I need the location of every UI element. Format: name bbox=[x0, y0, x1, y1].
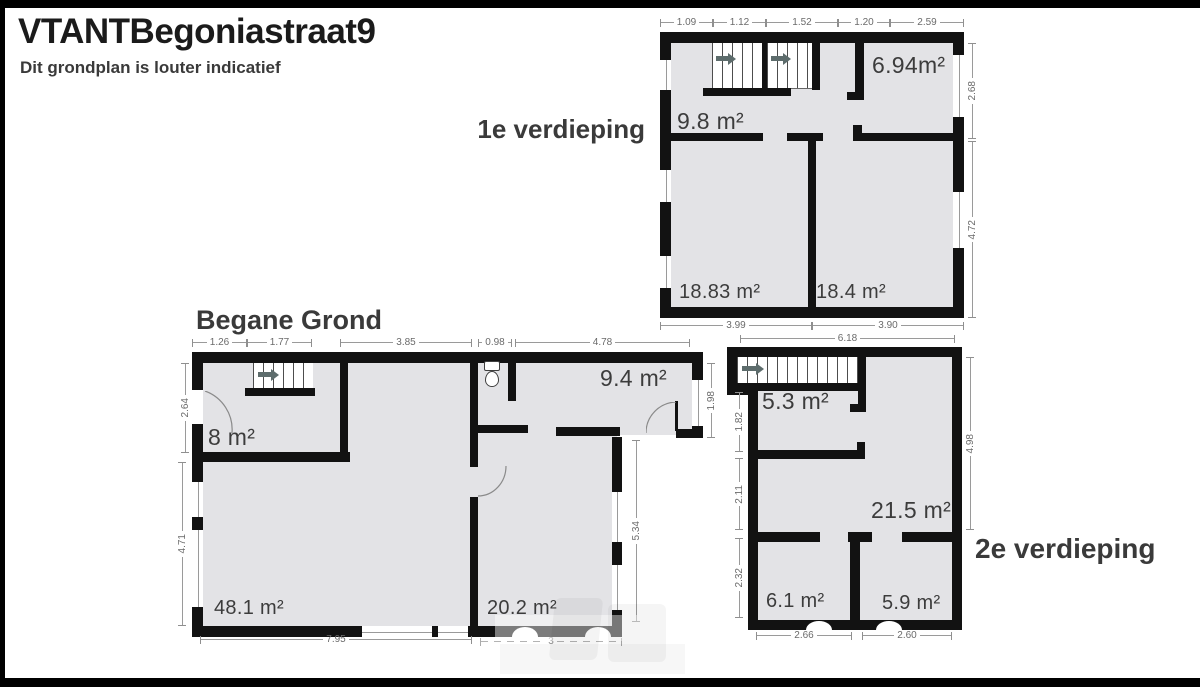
wall bbox=[470, 363, 478, 467]
window bbox=[192, 482, 203, 517]
dimension: 2.66 bbox=[756, 630, 852, 641]
dimension: 4.98 bbox=[964, 357, 976, 530]
dimension: 3.99 bbox=[660, 320, 812, 331]
floor-label-ground: Begane Grond bbox=[196, 305, 382, 336]
left-frame-bar bbox=[0, 0, 5, 687]
stairs-arrow-icon bbox=[771, 56, 783, 61]
dimension: 6.18 bbox=[740, 333, 955, 344]
dimension: 1.12 bbox=[713, 17, 766, 28]
wall bbox=[340, 363, 348, 453]
dimension: 2.59 bbox=[890, 17, 964, 28]
stairs bbox=[712, 43, 762, 89]
dimension: 3.85 bbox=[340, 337, 472, 348]
wall bbox=[748, 395, 758, 620]
wall bbox=[660, 307, 964, 318]
dimension: 1.09 bbox=[660, 17, 713, 28]
wall bbox=[808, 137, 816, 307]
window bbox=[660, 256, 671, 288]
window bbox=[953, 55, 964, 117]
window bbox=[692, 380, 703, 426]
page-title: VTANTBegoniastraat9 bbox=[18, 12, 375, 52]
room-label: 5.9 m² bbox=[882, 592, 940, 615]
wall bbox=[470, 425, 528, 433]
wall bbox=[902, 532, 952, 542]
dimension: 1.98 bbox=[705, 363, 717, 438]
room-label: 8 m² bbox=[208, 424, 255, 451]
stairs-arrow-icon bbox=[258, 372, 271, 377]
wall bbox=[556, 427, 620, 436]
window bbox=[953, 192, 964, 248]
dimension: 2.32 bbox=[733, 538, 745, 618]
wall bbox=[752, 450, 865, 459]
dimension: 7.95 bbox=[200, 634, 472, 645]
wall bbox=[850, 532, 860, 620]
room-label: 18.83 m² bbox=[679, 281, 760, 304]
room-label: 6.1 m² bbox=[766, 590, 824, 613]
dimension: 2.68 bbox=[966, 43, 978, 139]
room-label: 18.4 m² bbox=[816, 281, 886, 304]
door-opening bbox=[192, 390, 203, 424]
wall bbox=[508, 363, 516, 401]
dimension: 1.52 bbox=[766, 17, 838, 28]
wall bbox=[748, 620, 962, 630]
wall bbox=[853, 133, 954, 141]
dimension: 1.26 bbox=[192, 337, 247, 348]
floor-label-first: 1e verdieping bbox=[420, 114, 645, 145]
stairs-arrow-icon bbox=[742, 366, 756, 371]
wall bbox=[676, 429, 703, 438]
dimension: 1.20 bbox=[838, 17, 890, 28]
wall bbox=[812, 43, 820, 90]
stairs-arrow-icon bbox=[716, 56, 728, 61]
wall bbox=[758, 532, 820, 542]
dimension: 4.72 bbox=[966, 141, 978, 318]
dimension: 4.78 bbox=[515, 337, 690, 348]
top-frame-bar bbox=[0, 0, 1200, 8]
toilet-icon bbox=[482, 361, 502, 388]
dimension: 2.64 bbox=[179, 363, 191, 453]
wall bbox=[245, 388, 315, 396]
dimension: 5.34 bbox=[630, 440, 642, 622]
window bbox=[612, 492, 622, 542]
wall bbox=[787, 133, 823, 141]
door-arc bbox=[478, 466, 507, 497]
wall bbox=[853, 125, 862, 133]
wall bbox=[762, 43, 767, 88]
wall bbox=[952, 347, 962, 630]
page-subtitle: Dit grondplan is louter indicatief bbox=[20, 58, 281, 78]
dimension: 1.77 bbox=[247, 337, 312, 348]
window bbox=[660, 60, 671, 90]
room-label: 21.5 m² bbox=[871, 497, 951, 524]
dimension: 3.90 bbox=[812, 320, 964, 331]
bottom-frame-bar bbox=[0, 678, 1200, 687]
door-arc bbox=[646, 402, 677, 433]
dimension: 2.11 bbox=[733, 458, 745, 530]
floor-label-second: 2e verdieping bbox=[975, 533, 1156, 565]
room-label: 5.3 m² bbox=[762, 388, 829, 415]
window bbox=[192, 530, 203, 607]
floor-area-ground bbox=[197, 357, 617, 631]
floorplan-page: VTANTBegoniastraat9 Dit grondplan is lou… bbox=[0, 0, 1200, 687]
watermark bbox=[500, 644, 685, 674]
dimension: 0.98 bbox=[478, 337, 512, 348]
room-label: 6.94m² bbox=[872, 52, 945, 79]
wall bbox=[660, 32, 964, 43]
dimension: 4.71 bbox=[176, 462, 188, 626]
wall bbox=[470, 497, 478, 626]
wall bbox=[858, 357, 866, 412]
dimension: 1.82 bbox=[733, 392, 745, 452]
wall bbox=[192, 352, 703, 363]
wall bbox=[850, 404, 858, 412]
room-label: 48.1 m² bbox=[214, 597, 284, 620]
window bbox=[660, 170, 671, 202]
wall bbox=[857, 442, 865, 450]
room-label: 9.8 m² bbox=[677, 108, 744, 135]
wall bbox=[703, 88, 791, 96]
room-label: 9.4 m² bbox=[600, 365, 667, 392]
dimension: 2.60 bbox=[862, 630, 952, 641]
wall bbox=[192, 452, 350, 462]
wall bbox=[847, 92, 857, 100]
wall bbox=[727, 347, 962, 357]
